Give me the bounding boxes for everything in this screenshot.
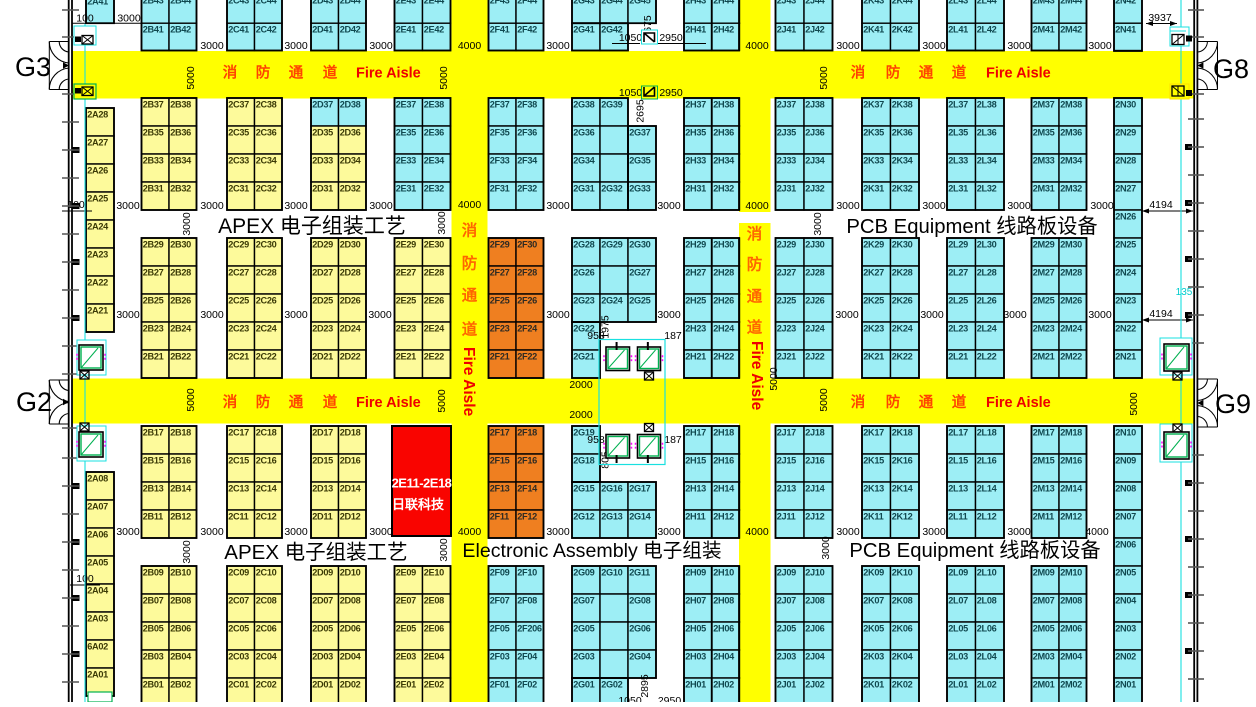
svg-text:2C17: 2C17 — [228, 427, 249, 437]
svg-text:2G43: 2G43 — [573, 0, 594, 5]
svg-text:2J15: 2J15 — [777, 455, 796, 465]
svg-text:3000: 3000 — [922, 526, 946, 538]
svg-text:2L03: 2L03 — [948, 651, 968, 661]
svg-text:2D22: 2D22 — [340, 351, 361, 361]
svg-text:2B04: 2B04 — [170, 651, 192, 661]
svg-text:2H44: 2H44 — [713, 0, 735, 5]
svg-text:2K25: 2K25 — [863, 295, 884, 305]
svg-text:2F44: 2F44 — [517, 0, 538, 5]
svg-text:2C14: 2C14 — [256, 483, 278, 493]
svg-text:2E02: 2E02 — [424, 679, 444, 689]
svg-text:2N06: 2N06 — [1115, 539, 1136, 549]
svg-text:2K27: 2K27 — [863, 267, 884, 277]
svg-text:3000: 3000 — [181, 540, 193, 564]
svg-text:2H17: 2H17 — [685, 427, 706, 437]
svg-text:2K15: 2K15 — [863, 455, 884, 465]
svg-text:2J14: 2J14 — [805, 483, 825, 493]
svg-text:2H38: 2H38 — [713, 99, 734, 109]
svg-text:2C23: 2C23 — [228, 323, 249, 333]
svg-text:2D34: 2D34 — [340, 155, 362, 165]
svg-text:2C07: 2C07 — [228, 595, 249, 605]
svg-text:2D01: 2D01 — [312, 679, 333, 689]
svg-text:2G34: 2G34 — [573, 155, 595, 165]
svg-text:2M13: 2M13 — [1033, 483, 1055, 493]
svg-text:2B26: 2B26 — [170, 295, 191, 305]
svg-text:消: 消 — [223, 64, 238, 82]
svg-text:2H29: 2H29 — [685, 239, 706, 249]
svg-text:2F28: 2F28 — [517, 267, 537, 277]
svg-text:2J04: 2J04 — [805, 651, 825, 661]
svg-text:2L31: 2L31 — [948, 183, 968, 193]
svg-text:2H33: 2H33 — [685, 155, 706, 165]
svg-text:2B34: 2B34 — [170, 155, 192, 165]
svg-text:2K43: 2K43 — [863, 0, 884, 5]
svg-text:2F21: 2F21 — [490, 351, 510, 361]
svg-text:2G27: 2G27 — [629, 267, 650, 277]
svg-text:2G12: 2G12 — [573, 511, 594, 521]
svg-text:2G06: 2G06 — [629, 623, 650, 633]
svg-text:2G44: 2G44 — [601, 0, 623, 5]
svg-text:2C31: 2C31 — [228, 183, 249, 193]
svg-text:2M10: 2M10 — [1060, 567, 1082, 577]
svg-text:2J11: 2J11 — [777, 511, 796, 521]
svg-text:2G01: 2G01 — [573, 679, 594, 689]
svg-text:2D05: 2D05 — [312, 623, 333, 633]
svg-text:3000: 3000 — [657, 526, 681, 538]
svg-text:2C36: 2C36 — [256, 127, 277, 137]
svg-text:2J43: 2J43 — [777, 0, 796, 5]
svg-text:2J35: 2J35 — [777, 127, 796, 137]
svg-text:2K30: 2K30 — [892, 239, 913, 249]
svg-text:2G26: 2G26 — [573, 267, 594, 277]
svg-text:2H11: 2H11 — [685, 511, 705, 521]
svg-text:2G45: 2G45 — [629, 0, 650, 5]
svg-text:2H27: 2H27 — [685, 267, 706, 277]
svg-text:2A41: 2A41 — [87, 0, 108, 6]
svg-text:2C10: 2C10 — [256, 567, 277, 577]
svg-text:2B15: 2B15 — [143, 455, 164, 465]
svg-text:3000: 3000 — [1007, 40, 1031, 52]
svg-text:2M42: 2M42 — [1060, 25, 1082, 35]
svg-text:2L24: 2L24 — [977, 323, 998, 333]
svg-text:2H23: 2H23 — [685, 323, 706, 333]
svg-text:2F10: 2F10 — [517, 567, 537, 577]
svg-text:道: 道 — [323, 64, 338, 82]
svg-text:2B35: 2B35 — [143, 127, 164, 137]
svg-text:2A28: 2A28 — [87, 109, 108, 119]
svg-text:2K35: 2K35 — [863, 127, 884, 137]
svg-text:2N01: 2N01 — [1115, 679, 1136, 689]
svg-text:2G02: 2G02 — [601, 679, 622, 689]
svg-text:2J30: 2J30 — [805, 239, 824, 249]
svg-text:2E35: 2E35 — [396, 127, 416, 137]
svg-text:2G35: 2G35 — [629, 155, 650, 165]
svg-text:2C27: 2C27 — [228, 267, 249, 277]
svg-text:2H16: 2H16 — [713, 455, 734, 465]
svg-text:2N09: 2N09 — [1115, 455, 1136, 465]
svg-text:2K26: 2K26 — [892, 295, 913, 305]
svg-text:通: 通 — [919, 394, 934, 411]
svg-text:2G08: 2G08 — [629, 595, 650, 605]
svg-text:2L16: 2L16 — [977, 455, 997, 465]
svg-text:2H14: 2H14 — [713, 483, 735, 493]
svg-text:Fire Aisle: Fire Aisle — [460, 347, 477, 417]
svg-text:2B22: 2B22 — [170, 351, 191, 361]
svg-text:2B32: 2B32 — [170, 183, 191, 193]
svg-text:2M43: 2M43 — [1033, 0, 1055, 5]
svg-text:187: 187 — [664, 330, 682, 342]
svg-text:2F26: 2F26 — [517, 295, 537, 305]
svg-text:2G15: 2G15 — [573, 483, 594, 493]
svg-text:2M25: 2M25 — [1033, 295, 1055, 305]
svg-text:2K12: 2K12 — [892, 511, 913, 521]
svg-text:2M38: 2M38 — [1060, 99, 1082, 109]
svg-text:3000: 3000 — [1088, 309, 1112, 321]
svg-text:2E05: 2E05 — [396, 623, 416, 633]
svg-text:2B17: 2B17 — [143, 427, 164, 437]
svg-text:2N30: 2N30 — [1115, 99, 1136, 109]
svg-text:2L04: 2L04 — [977, 651, 998, 661]
svg-text:2G33: 2G33 — [629, 183, 650, 193]
svg-text:2C44: 2C44 — [256, 0, 278, 5]
svg-text:2J01: 2J01 — [777, 679, 796, 689]
svg-text:2B07: 2B07 — [143, 595, 164, 605]
svg-text:防: 防 — [886, 393, 901, 411]
svg-text:2J33: 2J33 — [777, 155, 796, 165]
svg-text:2G17: 2G17 — [629, 483, 650, 493]
svg-text:2G23: 2G23 — [573, 295, 594, 305]
svg-text:2M24: 2M24 — [1060, 323, 1083, 333]
svg-text:2H35: 2H35 — [685, 127, 706, 137]
svg-text:2J16: 2J16 — [805, 455, 824, 465]
svg-text:2E28: 2E28 — [424, 267, 444, 277]
svg-text:2L18: 2L18 — [977, 427, 997, 437]
svg-text:3000: 3000 — [1090, 200, 1114, 212]
svg-text:2895: 2895 — [639, 674, 651, 698]
svg-text:2C33: 2C33 — [228, 155, 249, 165]
svg-text:2B44: 2B44 — [170, 0, 192, 5]
svg-text:2B05: 2B05 — [143, 623, 164, 633]
svg-text:2C08: 2C08 — [256, 595, 277, 605]
svg-text:2M29: 2M29 — [1033, 239, 1055, 249]
svg-text:2M30: 2M30 — [1060, 239, 1082, 249]
svg-text:2C12: 2C12 — [256, 511, 277, 521]
svg-text:2K06: 2K06 — [892, 623, 913, 633]
svg-text:2D06: 2D06 — [340, 623, 361, 633]
svg-text:4000: 4000 — [458, 199, 482, 211]
svg-text:2G24: 2G24 — [601, 295, 623, 305]
svg-text:2B18: 2B18 — [170, 427, 191, 437]
svg-text:2C29: 2C29 — [228, 239, 249, 249]
svg-text:2M33: 2M33 — [1033, 155, 1055, 165]
svg-text:2M21: 2M21 — [1033, 351, 1055, 361]
svg-text:2B33: 2B33 — [143, 155, 164, 165]
svg-text:2G39: 2G39 — [601, 99, 622, 109]
svg-text:2C28: 2C28 — [256, 267, 277, 277]
svg-text:2K38: 2K38 — [892, 99, 913, 109]
svg-text:2B06: 2B06 — [170, 623, 191, 633]
svg-text:2C34: 2C34 — [256, 155, 278, 165]
svg-text:G8: G8 — [1213, 54, 1249, 84]
svg-text:2D26: 2D26 — [340, 295, 361, 305]
svg-text:187: 187 — [664, 434, 682, 446]
svg-text:2L14: 2L14 — [977, 483, 998, 493]
svg-text:2L28: 2L28 — [977, 267, 997, 277]
svg-text:2L11: 2L11 — [948, 511, 967, 521]
svg-text:2M07: 2M07 — [1033, 595, 1055, 605]
svg-text:2L01: 2L01 — [948, 679, 968, 689]
svg-text:2B11: 2B11 — [143, 511, 163, 521]
svg-text:2H13: 2H13 — [685, 483, 706, 493]
svg-text:2A24: 2A24 — [87, 221, 109, 231]
svg-text:通: 通 — [289, 394, 304, 411]
svg-text:4000: 4000 — [745, 40, 769, 52]
svg-text:2C26: 2C26 — [256, 295, 277, 305]
svg-text:2F05: 2F05 — [490, 623, 510, 633]
svg-text:2M05: 2M05 — [1033, 623, 1055, 633]
svg-text:2C21: 2C21 — [228, 351, 249, 361]
svg-text:通: 通 — [919, 65, 934, 82]
svg-text:2M36: 2M36 — [1060, 127, 1082, 137]
svg-text:2K24: 2K24 — [892, 323, 914, 333]
svg-text:3000: 3000 — [438, 538, 450, 562]
svg-text:2J31: 2J31 — [777, 183, 796, 193]
svg-text:2C32: 2C32 — [256, 183, 277, 193]
svg-text:2J26: 2J26 — [805, 295, 824, 305]
svg-text:2K13: 2K13 — [863, 483, 884, 493]
svg-text:5000: 5000 — [818, 388, 830, 412]
svg-text:2N29: 2N29 — [1115, 127, 1136, 137]
svg-text:2D18: 2D18 — [340, 427, 361, 437]
svg-text:2D43: 2D43 — [312, 0, 333, 5]
svg-text:2000: 2000 — [569, 379, 593, 391]
svg-text:2J18: 2J18 — [805, 427, 824, 437]
svg-text:2A06: 2A06 — [87, 529, 108, 539]
svg-text:6A02: 6A02 — [87, 641, 108, 651]
svg-text:2K09: 2K09 — [863, 567, 884, 577]
svg-text:1050: 1050 — [619, 32, 643, 44]
svg-text:2K21: 2K21 — [863, 351, 884, 361]
svg-text:3000: 3000 — [200, 526, 224, 538]
svg-text:2D13: 2D13 — [312, 483, 333, 493]
svg-text:2D11: 2D11 — [312, 511, 332, 521]
svg-text:2C03: 2C03 — [228, 651, 249, 661]
svg-text:Fire Aisle: Fire Aisle — [356, 66, 421, 82]
svg-text:3000: 3000 — [657, 309, 681, 321]
svg-text:2A21: 2A21 — [87, 305, 108, 315]
svg-text:2G38: 2G38 — [573, 99, 594, 109]
svg-text:2E44: 2E44 — [424, 0, 445, 5]
svg-text:3000: 3000 — [1003, 309, 1027, 321]
svg-text:2A25: 2A25 — [87, 193, 108, 203]
svg-text:2E08: 2E08 — [424, 595, 444, 605]
svg-text:3000: 3000 — [657, 200, 681, 212]
svg-text:3000: 3000 — [181, 212, 193, 236]
svg-text:2H02: 2H02 — [713, 679, 734, 689]
svg-text:2G03: 2G03 — [573, 651, 594, 661]
svg-text:2L07: 2L07 — [948, 595, 968, 605]
svg-text:4000: 4000 — [458, 526, 482, 538]
svg-text:2K29: 2K29 — [863, 239, 884, 249]
svg-text:2M03: 2M03 — [1033, 651, 1055, 661]
svg-text:2G18: 2G18 — [573, 455, 594, 465]
svg-text:2M17: 2M17 — [1033, 427, 1055, 437]
svg-text:2L38: 2L38 — [977, 99, 997, 109]
svg-text:2C01: 2C01 — [228, 679, 249, 689]
svg-text:2K23: 2K23 — [863, 323, 884, 333]
svg-text:3000: 3000 — [200, 40, 224, 52]
svg-text:2J21: 2J21 — [777, 351, 796, 361]
svg-text:2F25: 2F25 — [490, 295, 510, 305]
svg-text:2000: 2000 — [569, 409, 593, 421]
svg-text:消: 消 — [851, 393, 866, 411]
svg-text:2F206: 2F206 — [517, 623, 542, 633]
svg-text:2L17: 2L17 — [948, 427, 968, 437]
svg-text:3000: 3000 — [368, 309, 392, 321]
svg-text:2A22: 2A22 — [87, 277, 108, 287]
svg-text:2D32: 2D32 — [340, 183, 361, 193]
svg-text:2D10: 2D10 — [340, 567, 361, 577]
svg-text:2K02: 2K02 — [892, 679, 913, 689]
svg-text:2K37: 2K37 — [863, 99, 884, 109]
svg-text:2K31: 2K31 — [863, 183, 884, 193]
svg-text:2K07: 2K07 — [863, 595, 884, 605]
svg-text:4194: 4194 — [1149, 199, 1173, 211]
svg-text:2N08: 2N08 — [1115, 483, 1136, 493]
svg-text:消: 消 — [851, 64, 866, 82]
svg-text:2L06: 2L06 — [977, 623, 997, 633]
svg-text:2G29: 2G29 — [601, 239, 622, 249]
svg-text:Electronic Assembly 电子组装: Electronic Assembly 电子组装 — [462, 540, 721, 562]
svg-text:3000: 3000 — [116, 526, 140, 538]
svg-text:2D12: 2D12 — [340, 511, 361, 521]
svg-text:2F22: 2F22 — [517, 351, 537, 361]
svg-text:2B28: 2B28 — [170, 267, 191, 277]
svg-text:1975: 1975 — [600, 315, 612, 339]
svg-text:2C22: 2C22 — [256, 351, 277, 361]
svg-text:2J25: 2J25 — [777, 295, 796, 305]
svg-text:2B27: 2B27 — [143, 267, 164, 277]
svg-text:2M08: 2M08 — [1060, 595, 1082, 605]
svg-text:2F42: 2F42 — [517, 25, 537, 35]
svg-text:Fire Aisle: Fire Aisle — [356, 395, 421, 411]
svg-text:2C06: 2C06 — [256, 623, 277, 633]
svg-text:5000: 5000 — [818, 66, 830, 90]
svg-text:2A27: 2A27 — [87, 137, 108, 147]
svg-text:3000: 3000 — [1007, 200, 1031, 212]
svg-text:2G16: 2G16 — [601, 483, 622, 493]
svg-text:2E31: 2E31 — [396, 183, 416, 193]
svg-text:2J42: 2J42 — [805, 25, 824, 35]
svg-text:5000: 5000 — [436, 389, 448, 413]
svg-text:2D28: 2D28 — [340, 267, 361, 277]
svg-text:2D27: 2D27 — [312, 267, 333, 277]
svg-text:2K05: 2K05 — [863, 623, 884, 633]
svg-text:2B41: 2B41 — [143, 25, 164, 35]
svg-text:2H06: 2H06 — [713, 623, 734, 633]
svg-text:2F18: 2F18 — [517, 427, 537, 437]
svg-text:2J34: 2J34 — [805, 155, 825, 165]
svg-text:3000: 3000 — [369, 526, 393, 538]
svg-text:2M34: 2M34 — [1060, 155, 1083, 165]
svg-text:2N21: 2N21 — [1115, 351, 1136, 361]
svg-text:3000: 3000 — [200, 200, 224, 212]
svg-text:2D04: 2D04 — [340, 651, 362, 661]
svg-text:2950: 2950 — [659, 32, 683, 44]
svg-text:2N28: 2N28 — [1115, 155, 1136, 165]
svg-text:2E06: 2E06 — [424, 623, 444, 633]
svg-text:2J29: 2J29 — [777, 239, 796, 249]
svg-text:通: 通 — [747, 288, 763, 306]
svg-text:2L30: 2L30 — [977, 239, 997, 249]
svg-text:2L10: 2L10 — [977, 567, 997, 577]
svg-text:2L36: 2L36 — [977, 127, 997, 137]
svg-text:2E43: 2E43 — [396, 0, 416, 5]
svg-text:2E24: 2E24 — [424, 323, 445, 333]
svg-text:2E33: 2E33 — [396, 155, 416, 165]
svg-text:2H05: 2H05 — [685, 623, 706, 633]
svg-text:2K16: 2K16 — [892, 455, 913, 465]
svg-text:2G21: 2G21 — [573, 351, 594, 361]
svg-text:2C18: 2C18 — [256, 427, 277, 437]
svg-text:2E30: 2E30 — [424, 239, 444, 249]
svg-text:2H03: 2H03 — [685, 651, 706, 661]
svg-text:2J17: 2J17 — [777, 427, 796, 437]
svg-text:2D42: 2D42 — [340, 25, 361, 35]
svg-text:2D44: 2D44 — [340, 0, 362, 5]
svg-text:Fire Aisle: Fire Aisle — [748, 341, 765, 411]
svg-text:2M35: 2M35 — [1033, 127, 1055, 137]
svg-text:2G25: 2G25 — [629, 295, 650, 305]
svg-text:2950: 2950 — [658, 695, 682, 702]
svg-text:2M37: 2M37 — [1033, 99, 1055, 109]
svg-text:2G28: 2G28 — [573, 239, 594, 249]
svg-text:2K04: 2K04 — [892, 651, 914, 661]
svg-text:3000: 3000 — [920, 309, 944, 321]
svg-text:2C42: 2C42 — [256, 25, 277, 35]
svg-text:2B03: 2B03 — [143, 651, 164, 661]
svg-text:5000: 5000 — [438, 66, 450, 90]
svg-text:2E23: 2E23 — [396, 323, 416, 333]
svg-text:2E07: 2E07 — [396, 595, 416, 605]
svg-text:2E22: 2E22 — [424, 351, 444, 361]
svg-text:2B38: 2B38 — [170, 99, 191, 109]
svg-text:2B08: 2B08 — [170, 595, 191, 605]
svg-text:3000: 3000 — [369, 200, 393, 212]
svg-text:2B37: 2B37 — [143, 99, 164, 109]
svg-text:2H21: 2H21 — [685, 351, 706, 361]
svg-text:2E41: 2E41 — [396, 25, 416, 35]
svg-text:135: 135 — [1176, 287, 1193, 298]
svg-text:2D30: 2D30 — [340, 239, 361, 249]
svg-text:道: 道 — [952, 64, 967, 82]
svg-text:3000: 3000 — [836, 40, 860, 52]
svg-text:2M31: 2M31 — [1033, 183, 1055, 193]
svg-text:2D14: 2D14 — [340, 483, 362, 493]
svg-text:2K01: 2K01 — [863, 679, 884, 689]
svg-text:2M26: 2M26 — [1060, 295, 1082, 305]
svg-text:2N42: 2N42 — [1115, 0, 1136, 5]
svg-text:G3: G3 — [15, 52, 51, 82]
svg-text:2N03: 2N03 — [1115, 623, 1136, 633]
svg-text:2H37: 2H37 — [685, 99, 706, 109]
svg-text:2E09: 2E09 — [396, 567, 416, 577]
svg-text:2F31: 2F31 — [490, 183, 510, 193]
svg-text:2K32: 2K32 — [892, 183, 913, 193]
svg-text:2K18: 2K18 — [892, 427, 913, 437]
svg-text:防: 防 — [747, 255, 763, 274]
svg-text:2K03: 2K03 — [863, 651, 884, 661]
